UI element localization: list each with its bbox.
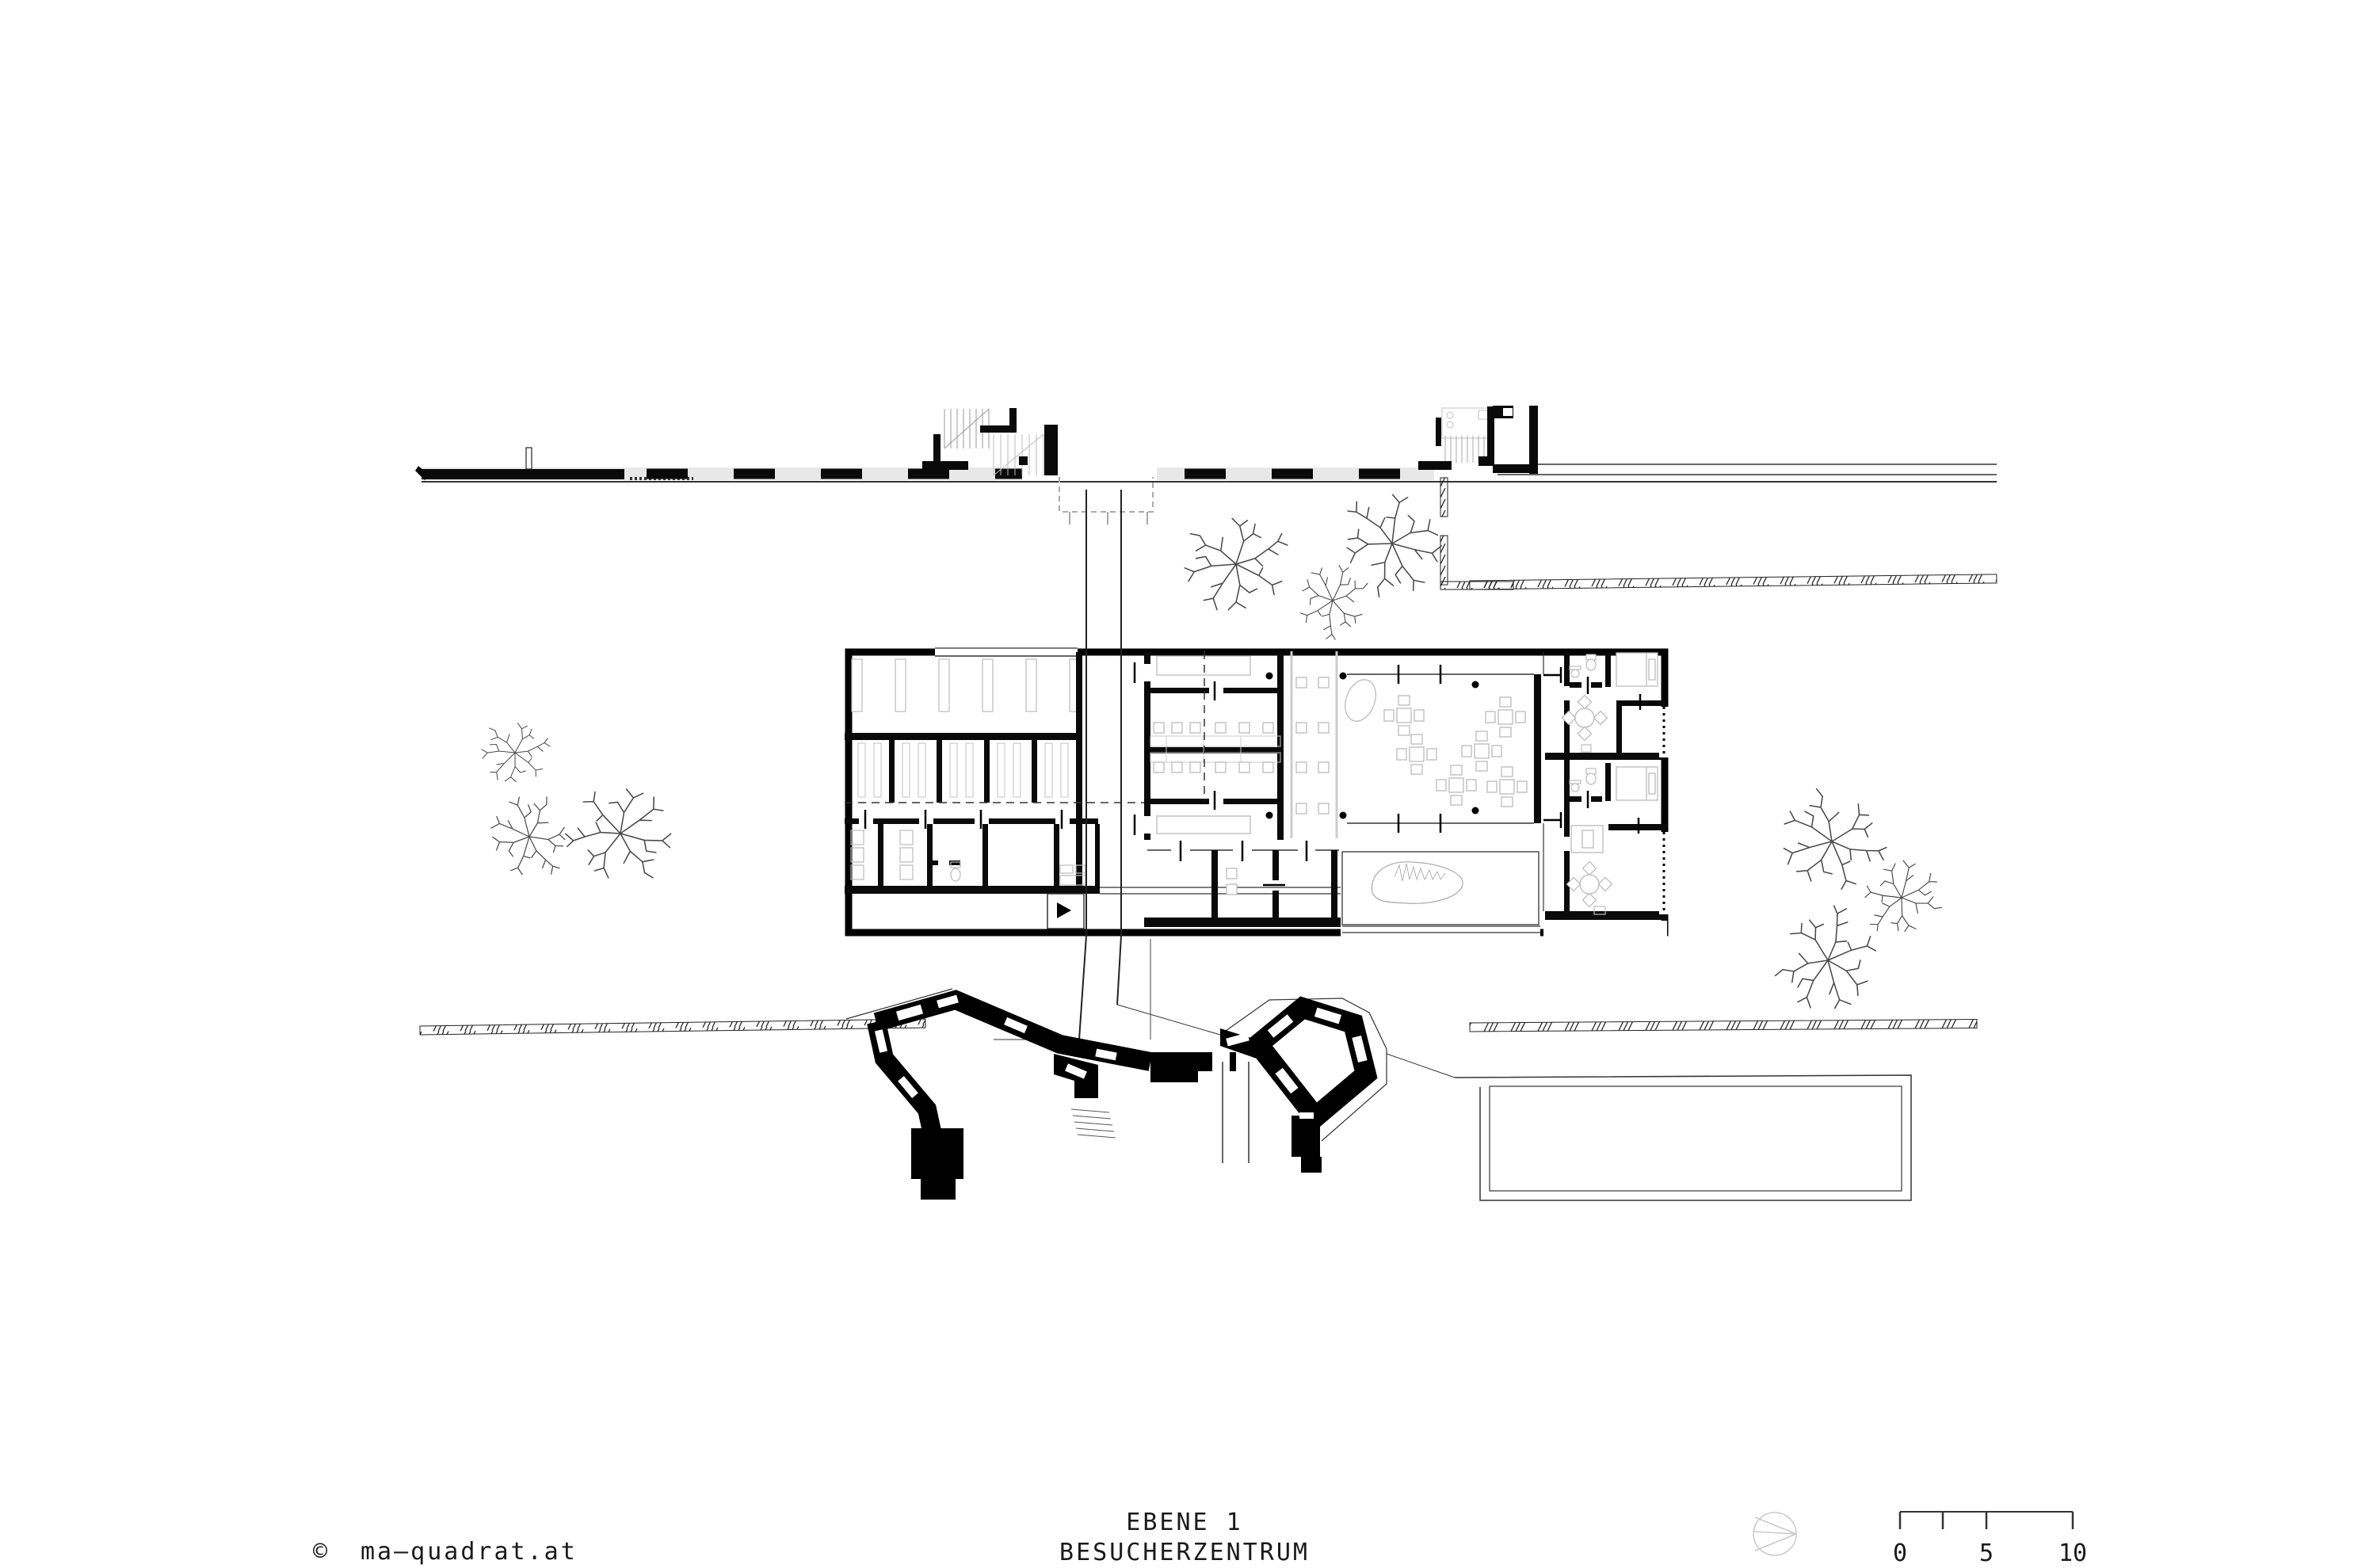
tree (1854, 853, 1950, 943)
tree (1185, 518, 1288, 609)
scale-bar: 0 5 10 (1893, 1512, 2087, 1567)
stair-block-right (1418, 406, 1538, 474)
sheet-title-level: EBENE 1 (1126, 1509, 1242, 1536)
site-upper-wall (415, 448, 1997, 482)
tree (486, 791, 572, 883)
tree (477, 718, 553, 788)
courtyard (1387, 1054, 1911, 1200)
bastion-left (846, 989, 1236, 1200)
copyright-symbol: © (313, 1538, 330, 1566)
title-block: © ma—quadrat.at EBENE 1 BESUCHERZENTRUM … (313, 1509, 2087, 1567)
tree (556, 773, 684, 895)
visitor-center-building (845, 647, 1670, 940)
tree (1332, 479, 1453, 607)
scale-label-5: 5 (1979, 1539, 1994, 1567)
copyright-text: ma—quadrat.at (361, 1538, 578, 1566)
scale-label-10: 10 (2058, 1539, 2087, 1567)
tree (1287, 553, 1379, 648)
floor-plan-drawing: © ma—quadrat.at EBENE 1 BESUCHERZENTRUM … (0, 0, 2377, 1568)
north-indicator-icon (1753, 1513, 1796, 1555)
tree (1760, 891, 1896, 1028)
scale-label-0: 0 (1893, 1539, 1907, 1567)
floor-plan-sheet: © ma—quadrat.at EBENE 1 BESUCHERZENTRUM … (0, 0, 2377, 1568)
sheet-title-building: BESUCHERZENTRUM (1059, 1539, 1310, 1566)
tree (1763, 773, 1900, 910)
bastion-right (1220, 998, 1387, 1173)
